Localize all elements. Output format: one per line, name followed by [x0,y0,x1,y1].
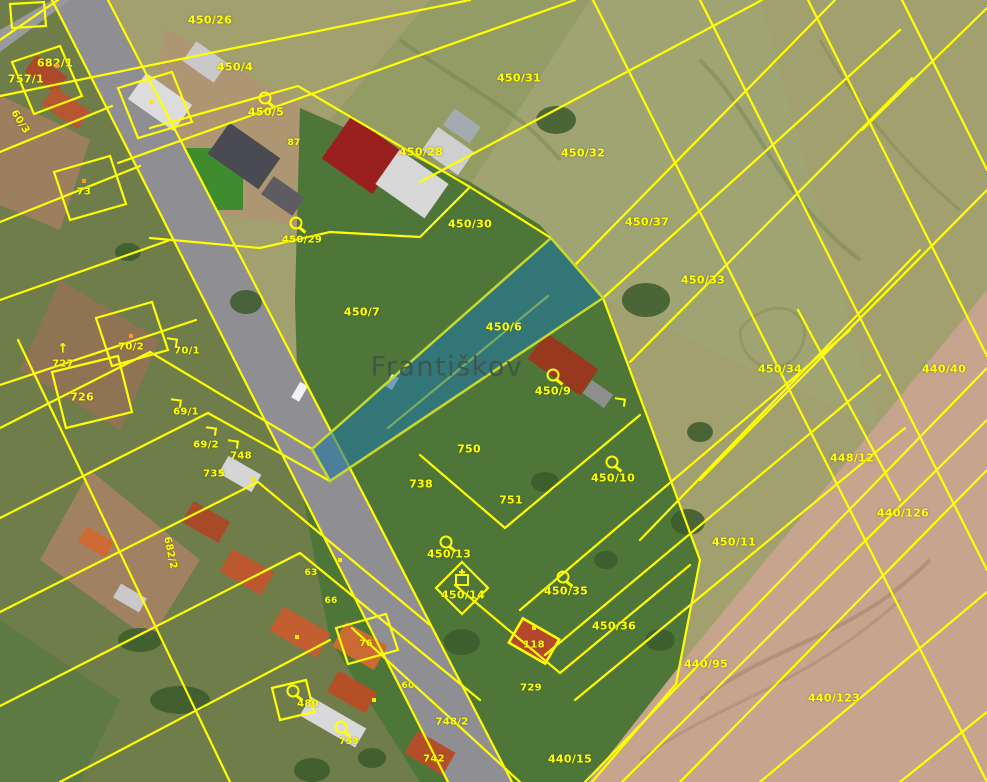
map-viewport[interactable]: Františkov 682/1450/26450/4450/31450/545… [0,0,987,782]
map-canvas [0,0,987,782]
